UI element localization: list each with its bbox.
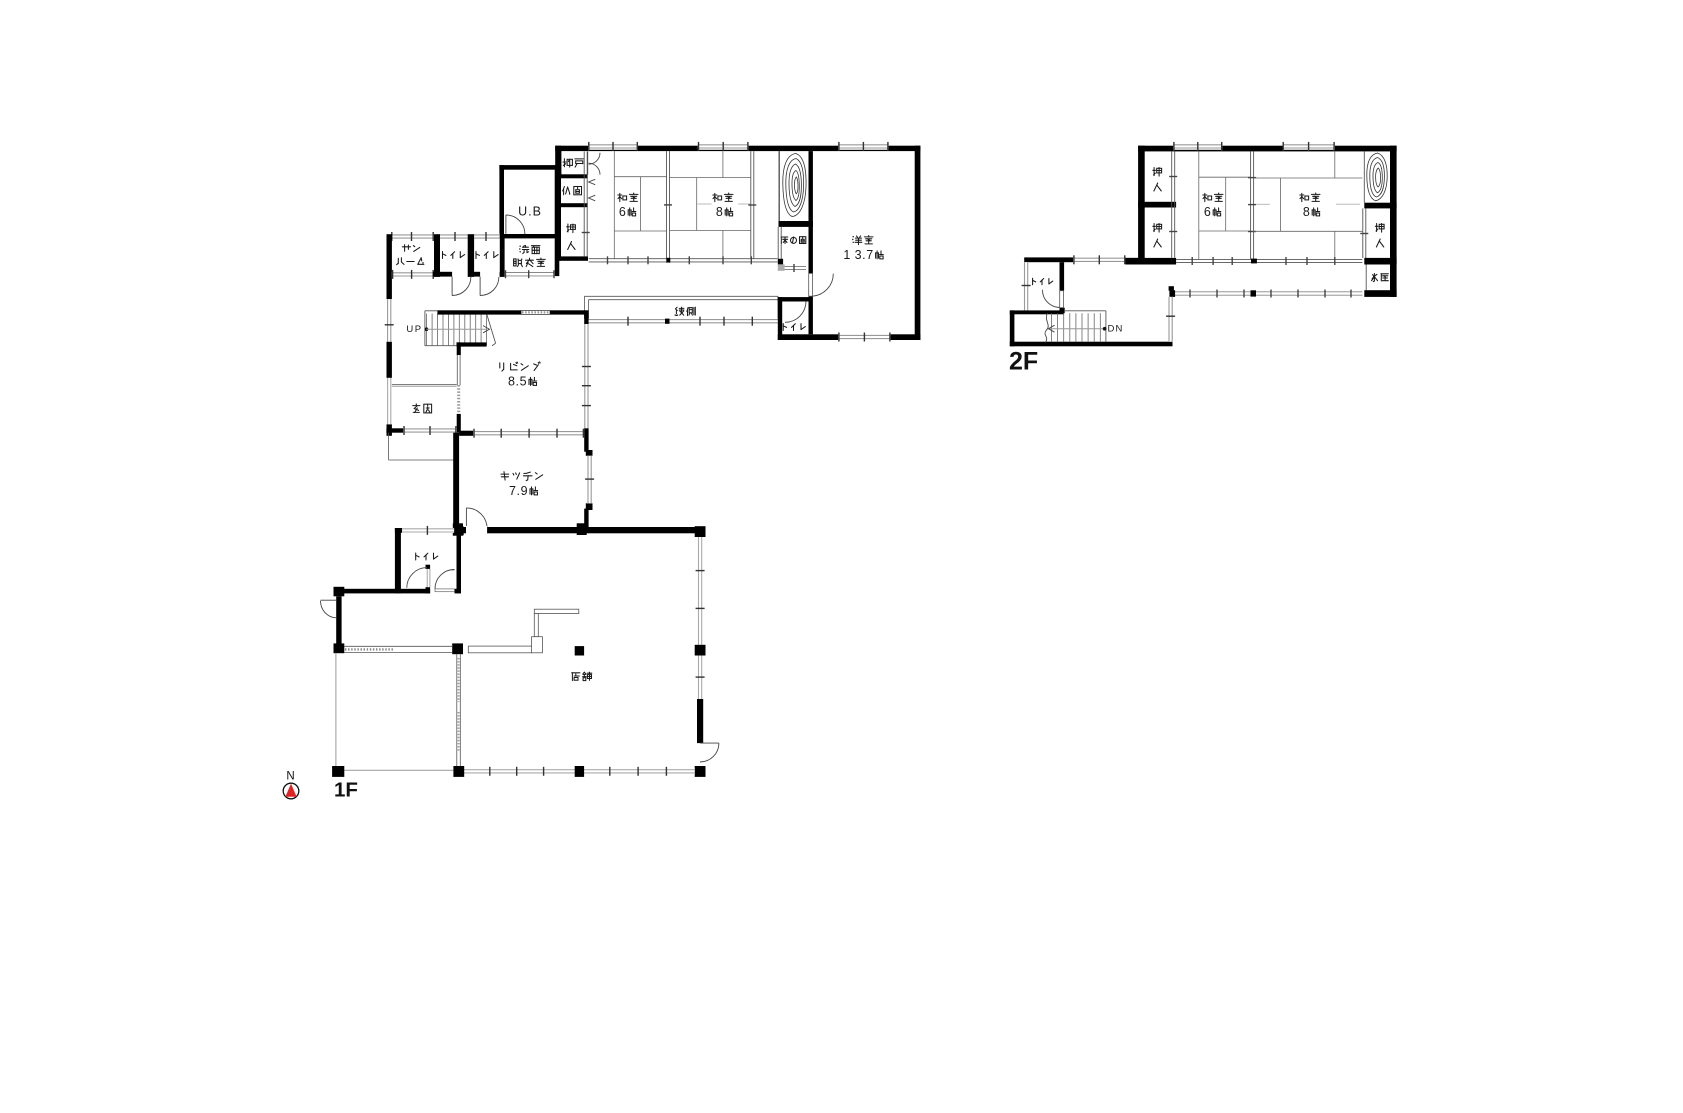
svg-text:U.B: U.B [518, 205, 542, 219]
svg-text:.: . [516, 375, 519, 389]
svg-text:8: 8 [1303, 205, 1310, 219]
svg-text:.: . [862, 248, 865, 262]
svg-text:1F: 1F [334, 779, 358, 802]
svg-text:8: 8 [716, 205, 723, 219]
svg-text:DN: DN [1107, 324, 1123, 335]
svg-text:6: 6 [1204, 205, 1211, 219]
svg-text:UP: UP [406, 324, 422, 335]
svg-text:2F: 2F [1009, 348, 1038, 376]
svg-text:7: 7 [509, 484, 516, 498]
svg-text:5: 5 [520, 375, 527, 389]
svg-text:6: 6 [619, 205, 626, 219]
svg-text:3: 3 [855, 248, 862, 262]
svg-text:N: N [286, 771, 294, 783]
svg-text:.: . [517, 484, 520, 498]
svg-text:9: 9 [521, 484, 528, 498]
svg-text:1: 1 [843, 248, 850, 262]
svg-text:7: 7 [866, 248, 873, 262]
svg-text:8: 8 [508, 375, 515, 389]
